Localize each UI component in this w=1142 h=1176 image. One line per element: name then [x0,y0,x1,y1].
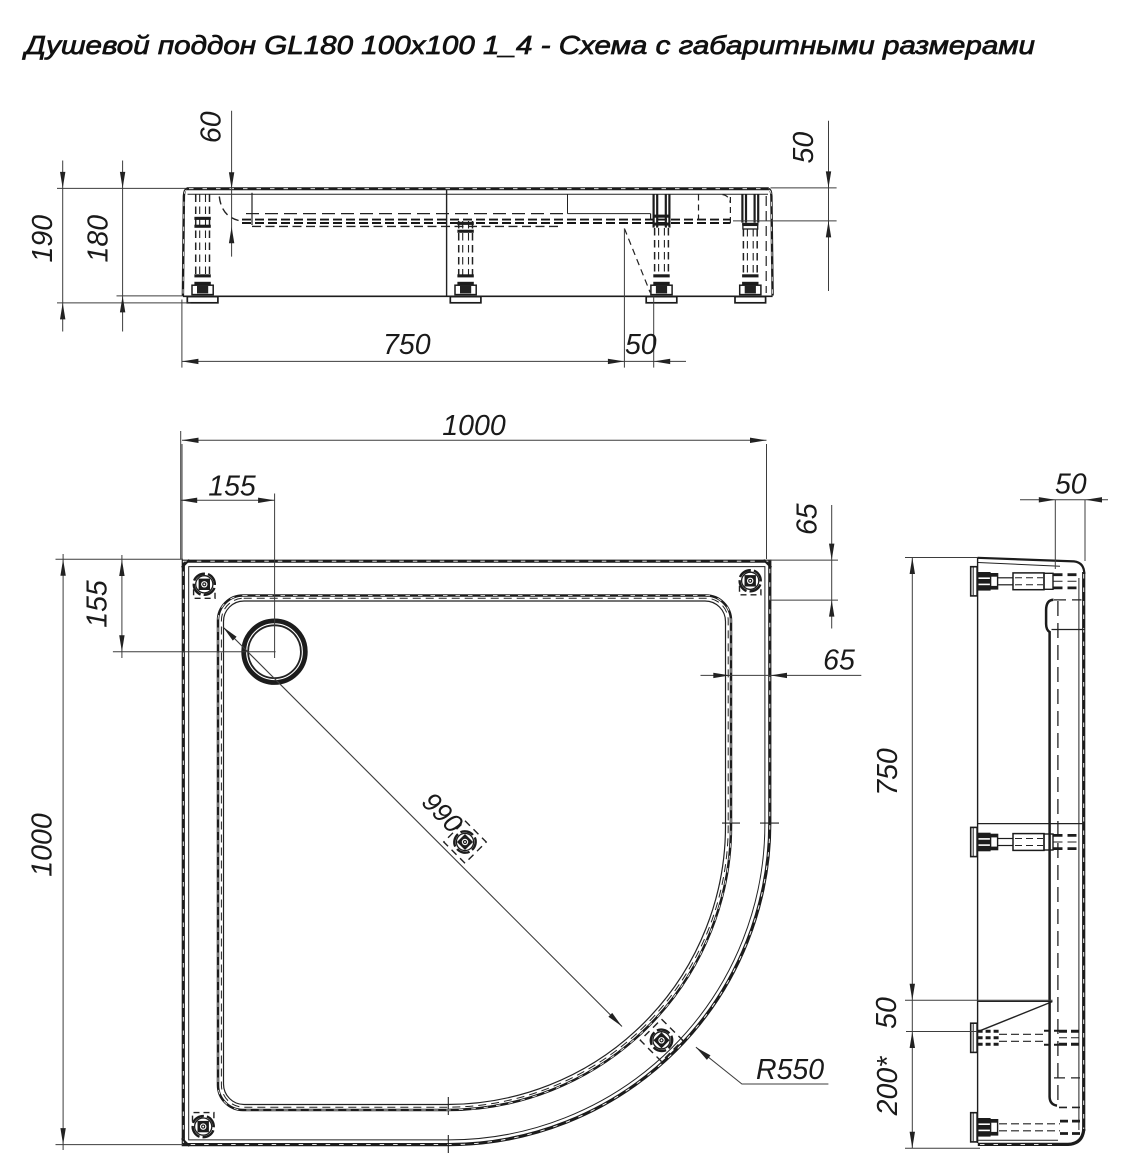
svg-text:50: 50 [625,329,657,361]
svg-text:1000: 1000 [27,813,59,877]
svg-text:65: 65 [823,645,855,677]
svg-text:180: 180 [83,215,115,263]
svg-text:750: 750 [872,748,904,796]
svg-text:50: 50 [788,132,820,164]
svg-text:60: 60 [195,111,227,143]
svg-text:1000: 1000 [442,410,506,442]
svg-text:190: 190 [27,215,59,263]
svg-text:155: 155 [208,471,256,503]
svg-text:65: 65 [791,503,823,535]
svg-text:50: 50 [871,997,903,1029]
svg-text:200*: 200* [872,1056,904,1117]
svg-text:R550: R550 [756,1054,824,1086]
svg-text:750: 750 [383,329,431,361]
svg-text:155: 155 [82,580,114,628]
svg-text:Душевой поддон GL180 100х100: Душевой поддон GL180 100х100 1_4 - Схема… [22,30,1035,60]
svg-text:50: 50 [1055,469,1087,501]
